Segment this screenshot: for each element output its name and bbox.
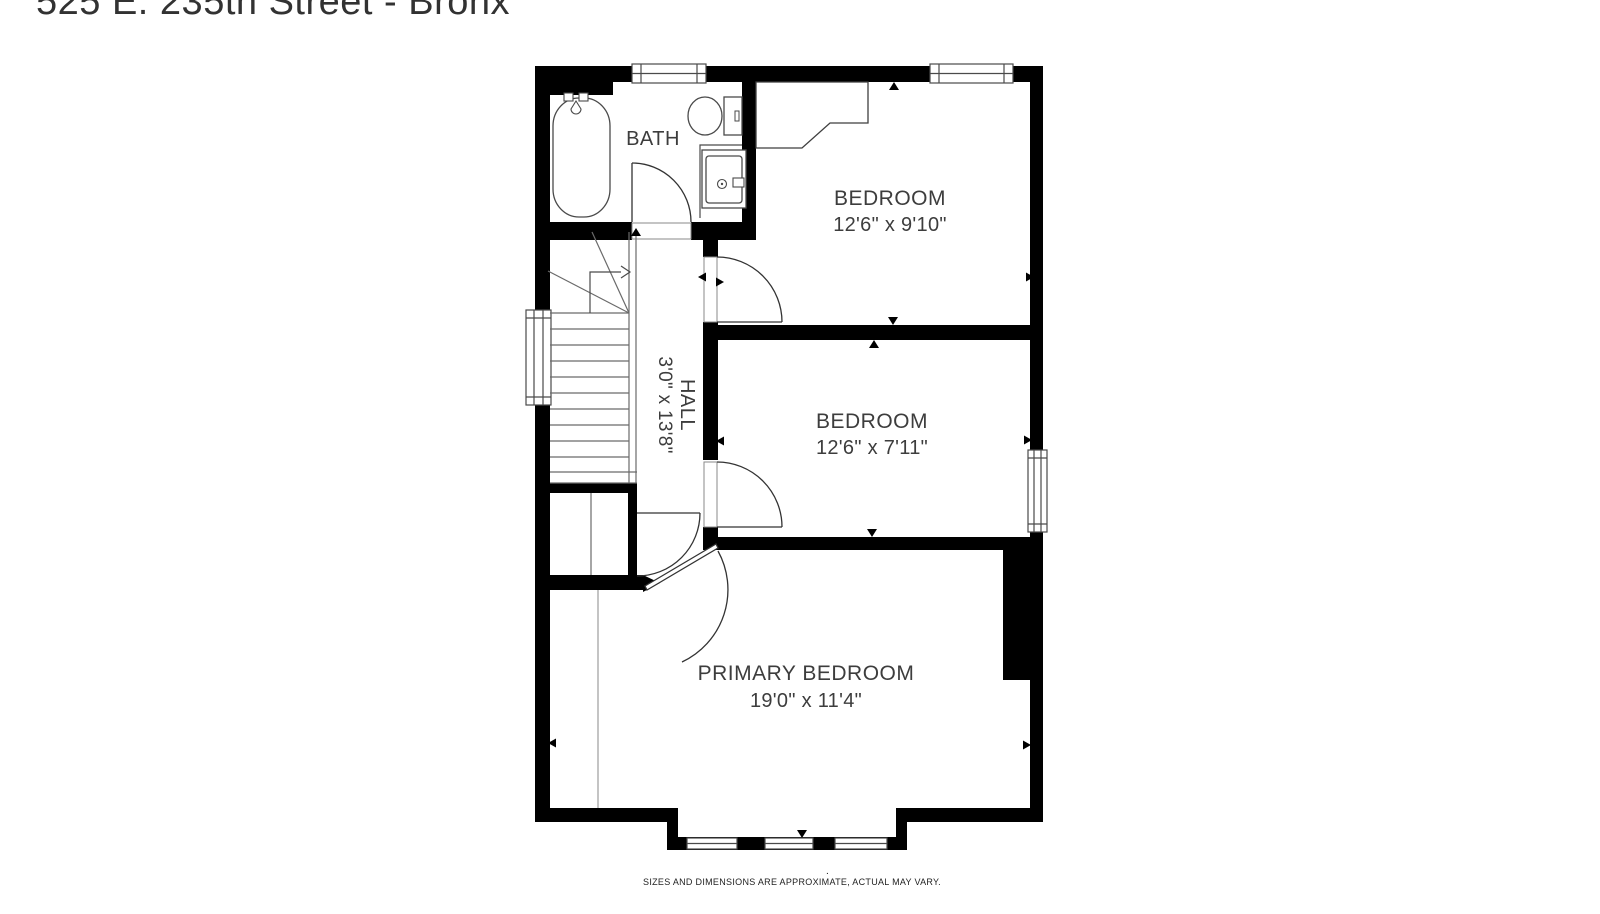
door-bedroom2 <box>704 462 782 527</box>
chimney-outline <box>756 82 868 148</box>
room-label-primary: PRIMARY BEDROOM <box>698 662 915 686</box>
room-dims-bedroom1: 12'6" x 9'10" <box>833 214 947 237</box>
disclaimer-text: SIZES AND DIMENSIONS ARE APPROXIMATE, AC… <box>643 877 941 887</box>
door-closet <box>637 513 700 576</box>
stray-dot: . <box>826 866 829 877</box>
window-right-bedroom2 <box>1028 450 1047 532</box>
room-dims-primary: 19'0" x 11'4" <box>750 690 862 713</box>
door-bath <box>632 163 691 239</box>
floorplan-canvas: 525 E. 235th Street - Bronx <box>0 0 1600 914</box>
walls <box>535 66 1043 850</box>
room-label-bedroom2: BEDROOM <box>816 410 928 434</box>
floorplan-drawing <box>0 0 1600 914</box>
window-left-stairs <box>526 310 551 405</box>
room-label-hall-block: HALL 3'0" x 13'8" <box>646 295 698 515</box>
bay-windows <box>687 838 887 849</box>
stair-up-arrow <box>590 266 630 313</box>
window-top-bath <box>632 64 706 83</box>
room-label-hall: HALL <box>675 295 698 515</box>
room-label-bath: BATH <box>626 128 680 151</box>
door-primary <box>645 544 728 662</box>
dimension-arrows <box>548 82 1034 838</box>
room-dims-hall: 3'0" x 13'8" <box>653 295 675 515</box>
bath-fixtures <box>553 93 746 218</box>
sink-vanity-icon <box>700 145 746 218</box>
room-label-bedroom1: BEDROOM <box>834 187 946 211</box>
window-top-bedroom1 <box>930 64 1013 83</box>
staircase <box>548 232 637 808</box>
room-dims-bedroom2: 12'6" x 7'11" <box>816 437 928 460</box>
door-bedroom1 <box>704 257 782 322</box>
toilet-icon <box>688 97 742 135</box>
bathtub-icon <box>553 93 610 217</box>
